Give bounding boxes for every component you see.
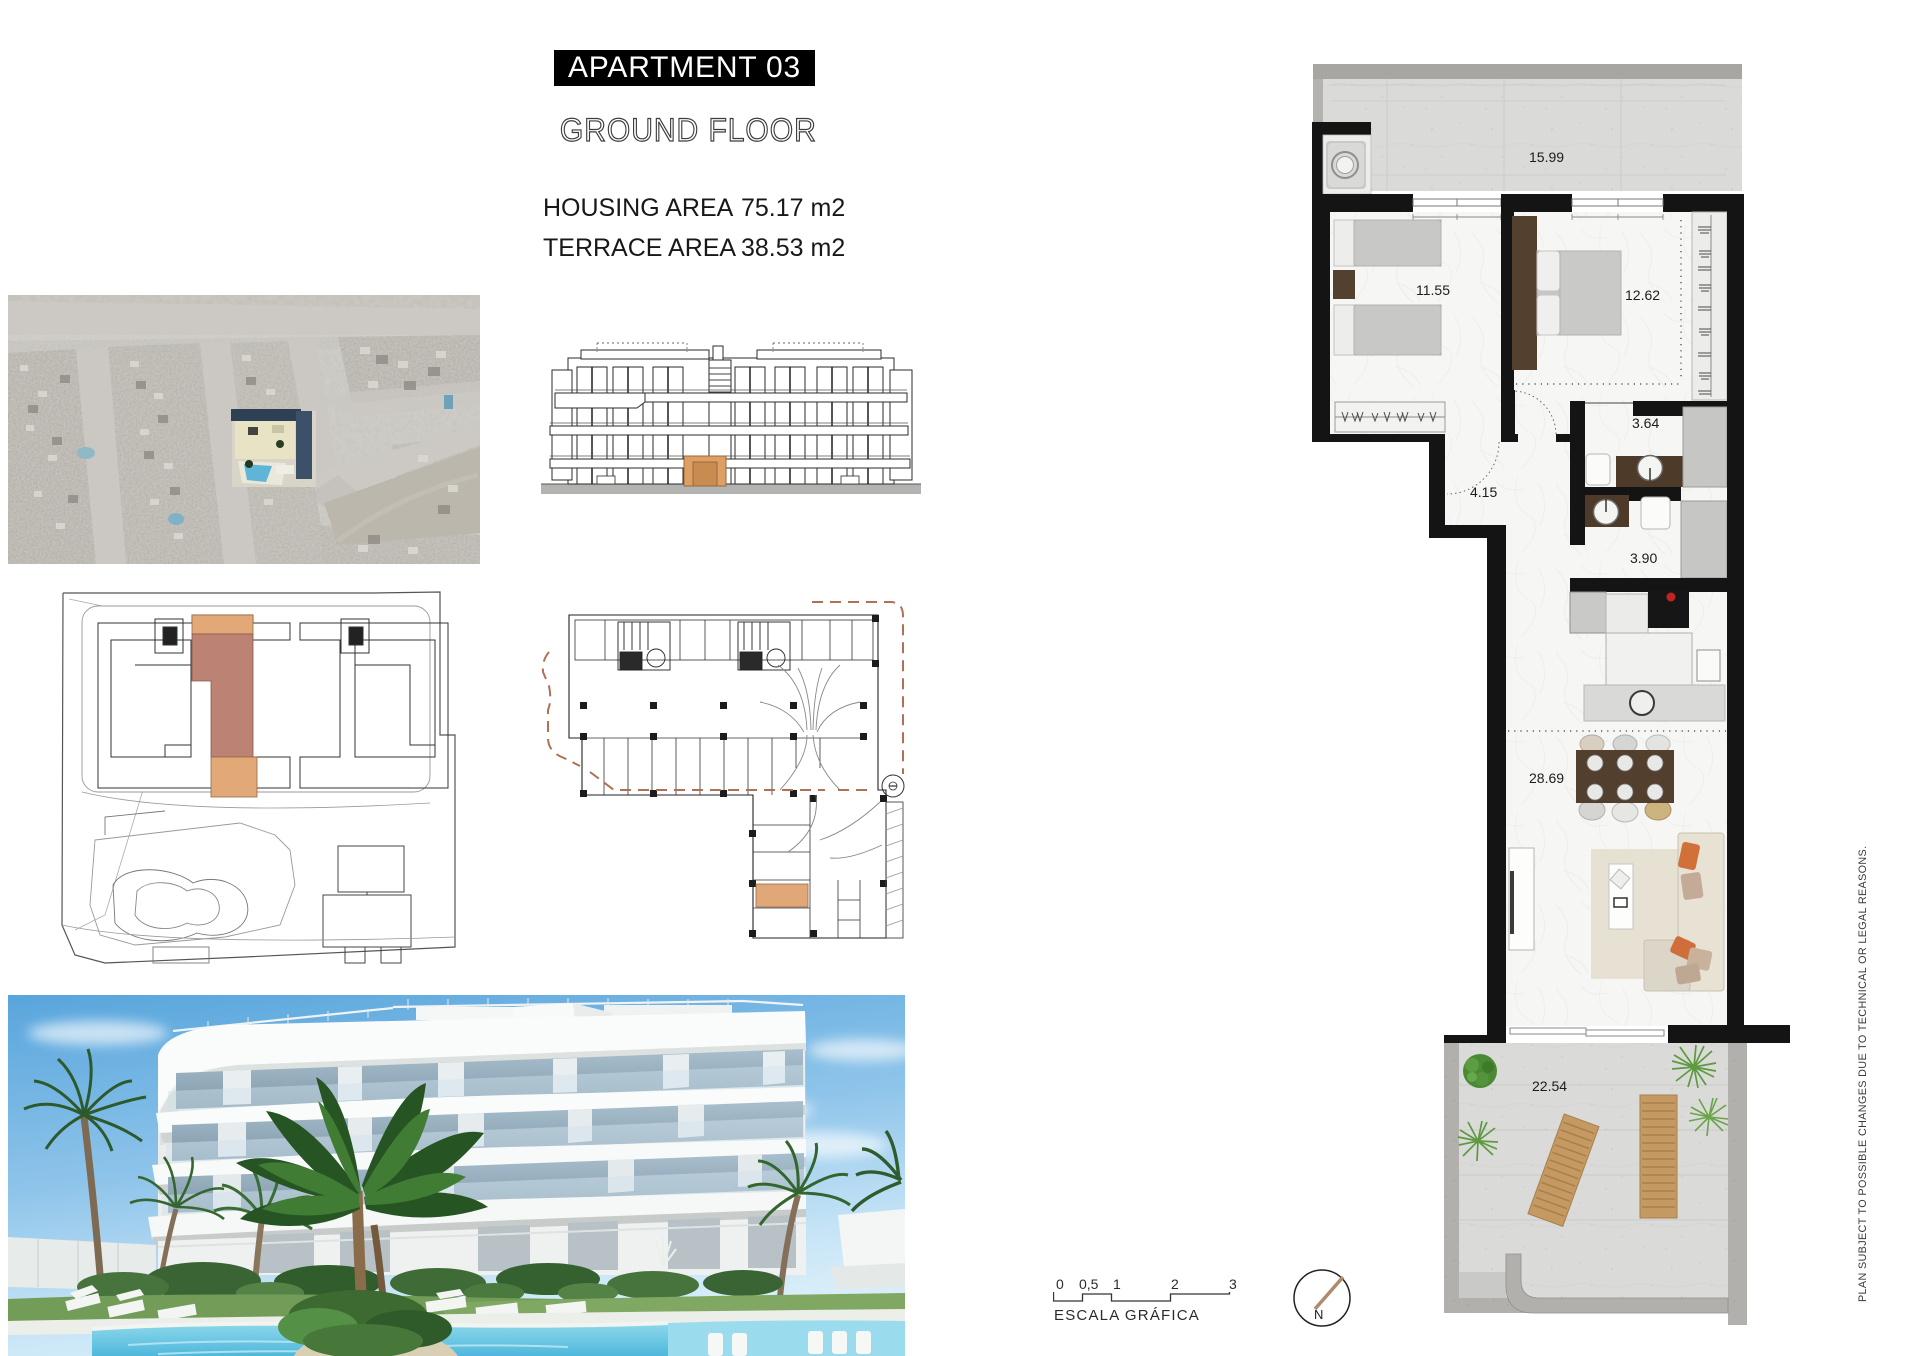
svg-text:28.69: 28.69 <box>1529 770 1564 786</box>
svg-text:3.90: 3.90 <box>1630 550 1657 566</box>
svg-text:12.62: 12.62 <box>1625 287 1660 303</box>
svg-text:11.55: 11.55 <box>1416 282 1450 298</box>
svg-text:N: N <box>1314 1307 1323 1322</box>
svg-text:22.54: 22.54 <box>1532 1078 1567 1094</box>
svg-text:15.99: 15.99 <box>1529 149 1564 165</box>
svg-text:GROUND FLOOR: GROUND FLOOR <box>560 112 817 148</box>
svg-text:3.64: 3.64 <box>1632 415 1659 431</box>
svg-text:4.15: 4.15 <box>1470 484 1497 500</box>
